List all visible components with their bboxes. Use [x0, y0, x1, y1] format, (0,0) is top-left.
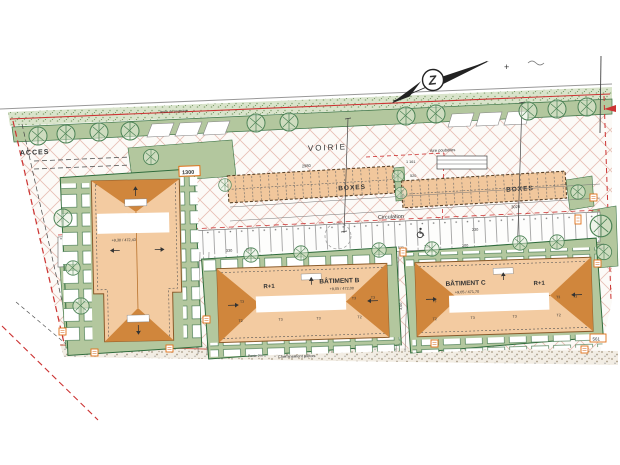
unit-label: T3 [556, 295, 560, 299]
dim-330: 330 [226, 249, 233, 253]
svg-text:1300: 1300 [182, 170, 194, 176]
building-b: R+1 BÂTIMENT B +9,05 / 472,00 T3 T3 T3 T… [201, 247, 401, 359]
redacted-patch-c [449, 293, 549, 313]
scanned-site-plan-page: limite de propriété ACCES [0, 0, 620, 465]
building-b-levels: +9,05 / 472,00 [330, 286, 355, 291]
dim-520: 520 [410, 174, 416, 178]
tag-1300: 1300 [179, 166, 200, 177]
unit-label: T3 [278, 318, 282, 322]
unit-label: T3 [316, 316, 320, 320]
dim-230: 230 [472, 228, 479, 232]
building-c-floors: R+1 [534, 281, 546, 287]
unit-label: T2 [433, 317, 437, 321]
svg-text:561: 561 [593, 337, 601, 342]
garbage-label: Aire poubelles [430, 147, 456, 153]
site-plan-drawing: limite de propriété ACCES [0, 0, 620, 465]
redacted-patch-a [97, 212, 169, 234]
access-label: ACCES [20, 149, 50, 157]
building-b-floors: R+1 [263, 284, 275, 290]
building-a: +9,30 / 472,43 [60, 169, 202, 356]
scribble-mark [528, 61, 544, 65]
plus-mark: + [504, 62, 509, 72]
unit-label: T3 [573, 295, 577, 299]
redacted-patch-b [256, 294, 346, 313]
slope-b-label: Pente 2% [248, 354, 263, 358]
unit-label: T2 [357, 315, 361, 319]
boxes-left-dim: 2980 [302, 163, 312, 169]
building-c-levels: +9,05 / 471,70 [455, 290, 480, 295]
boxes-right-dim: 3020 [511, 204, 521, 210]
unit-label: T3 [471, 316, 475, 320]
unit-label: T3 [352, 296, 356, 300]
dim-1161: 1 161 [406, 160, 416, 164]
unit-label: T2 [557, 313, 561, 317]
voirie-label: VOIRIE [308, 142, 347, 153]
building-a-levels: +9,30 / 472,43 [112, 238, 136, 243]
unit-label: T3 [513, 315, 517, 319]
unit-label: T3 [240, 300, 244, 304]
unit-label: T3 [371, 296, 375, 300]
unit-label: T2 [238, 319, 242, 323]
tag-561: 561 [590, 334, 606, 342]
walkway-b-label: Cheminement piéton [278, 353, 315, 359]
unit-label: T3 [432, 299, 436, 303]
